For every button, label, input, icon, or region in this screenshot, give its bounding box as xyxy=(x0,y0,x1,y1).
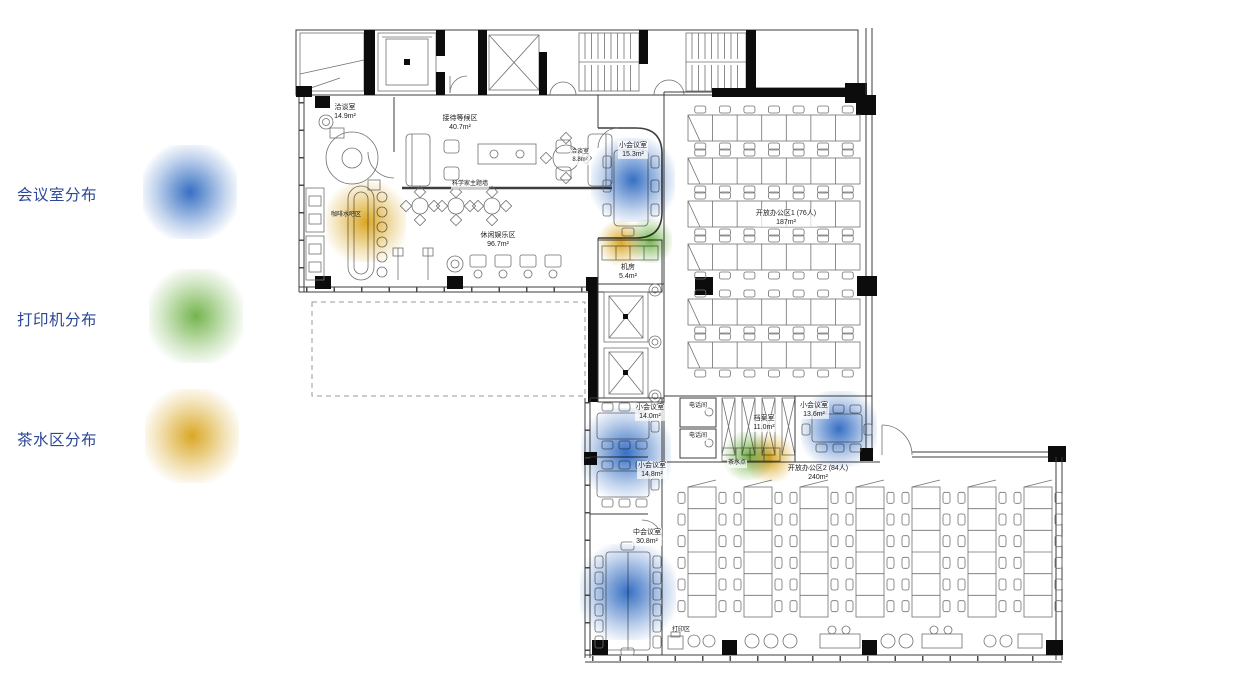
room-label: 接待等候区40.7m² xyxy=(442,114,479,132)
room-label: 小会议室13.6m² xyxy=(799,401,829,419)
room-label: 咖啡水吧区 xyxy=(331,212,361,220)
room-label: 中会议室30.8m² xyxy=(632,528,662,546)
room-label: 休闲娱乐区96.7m² xyxy=(480,231,517,249)
room-label: 档案室11.0m² xyxy=(752,414,775,432)
room-label: 开放办公区2 (84人)240m² xyxy=(788,464,848,482)
room-label: 洽谈室8.8m² xyxy=(570,149,590,165)
room-label: 茶水点 xyxy=(727,460,747,468)
floor-plan-drawing xyxy=(0,0,1245,684)
room-label: 小会议室15.3m² xyxy=(618,141,648,159)
room-label: 电话间 xyxy=(688,403,708,411)
room-label: 科学家主题墙 xyxy=(451,181,489,189)
room-label: 小会议室14.0m² xyxy=(635,403,665,421)
room-label: 小会议室14.8m² xyxy=(637,461,667,479)
floor-plan: 洽谈室14.9m²接待等候区40.7m²科学家主题墙休闲娱乐区96.7m²洽谈室… xyxy=(0,0,1245,684)
room-label: 电话间 xyxy=(688,433,708,441)
room-label: 洽谈室14.9m² xyxy=(333,103,357,121)
room-label: 开放办公区1 (76人)187m² xyxy=(755,209,817,227)
room-label: 机房5.4m² xyxy=(618,263,638,281)
room-label: 打印区 xyxy=(672,627,690,635)
